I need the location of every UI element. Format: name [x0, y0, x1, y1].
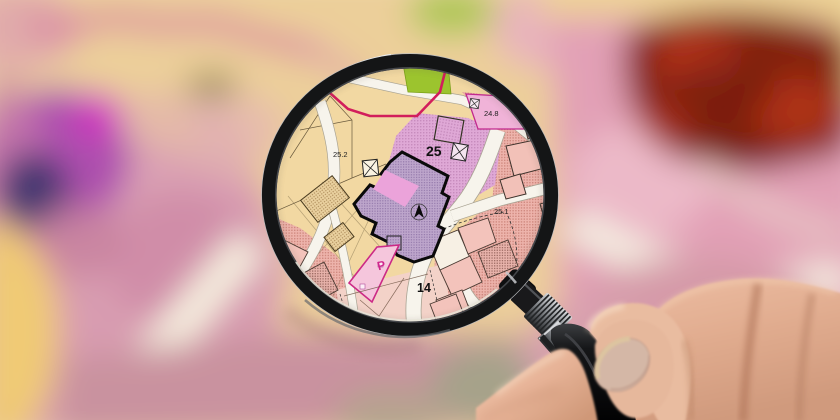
svg-text:25.2: 25.2 [333, 150, 348, 159]
svg-text:25.1: 25.1 [494, 207, 509, 216]
svg-text:14: 14 [417, 281, 431, 295]
svg-text:25: 25 [426, 143, 442, 159]
svg-text:24.8: 24.8 [484, 109, 499, 118]
